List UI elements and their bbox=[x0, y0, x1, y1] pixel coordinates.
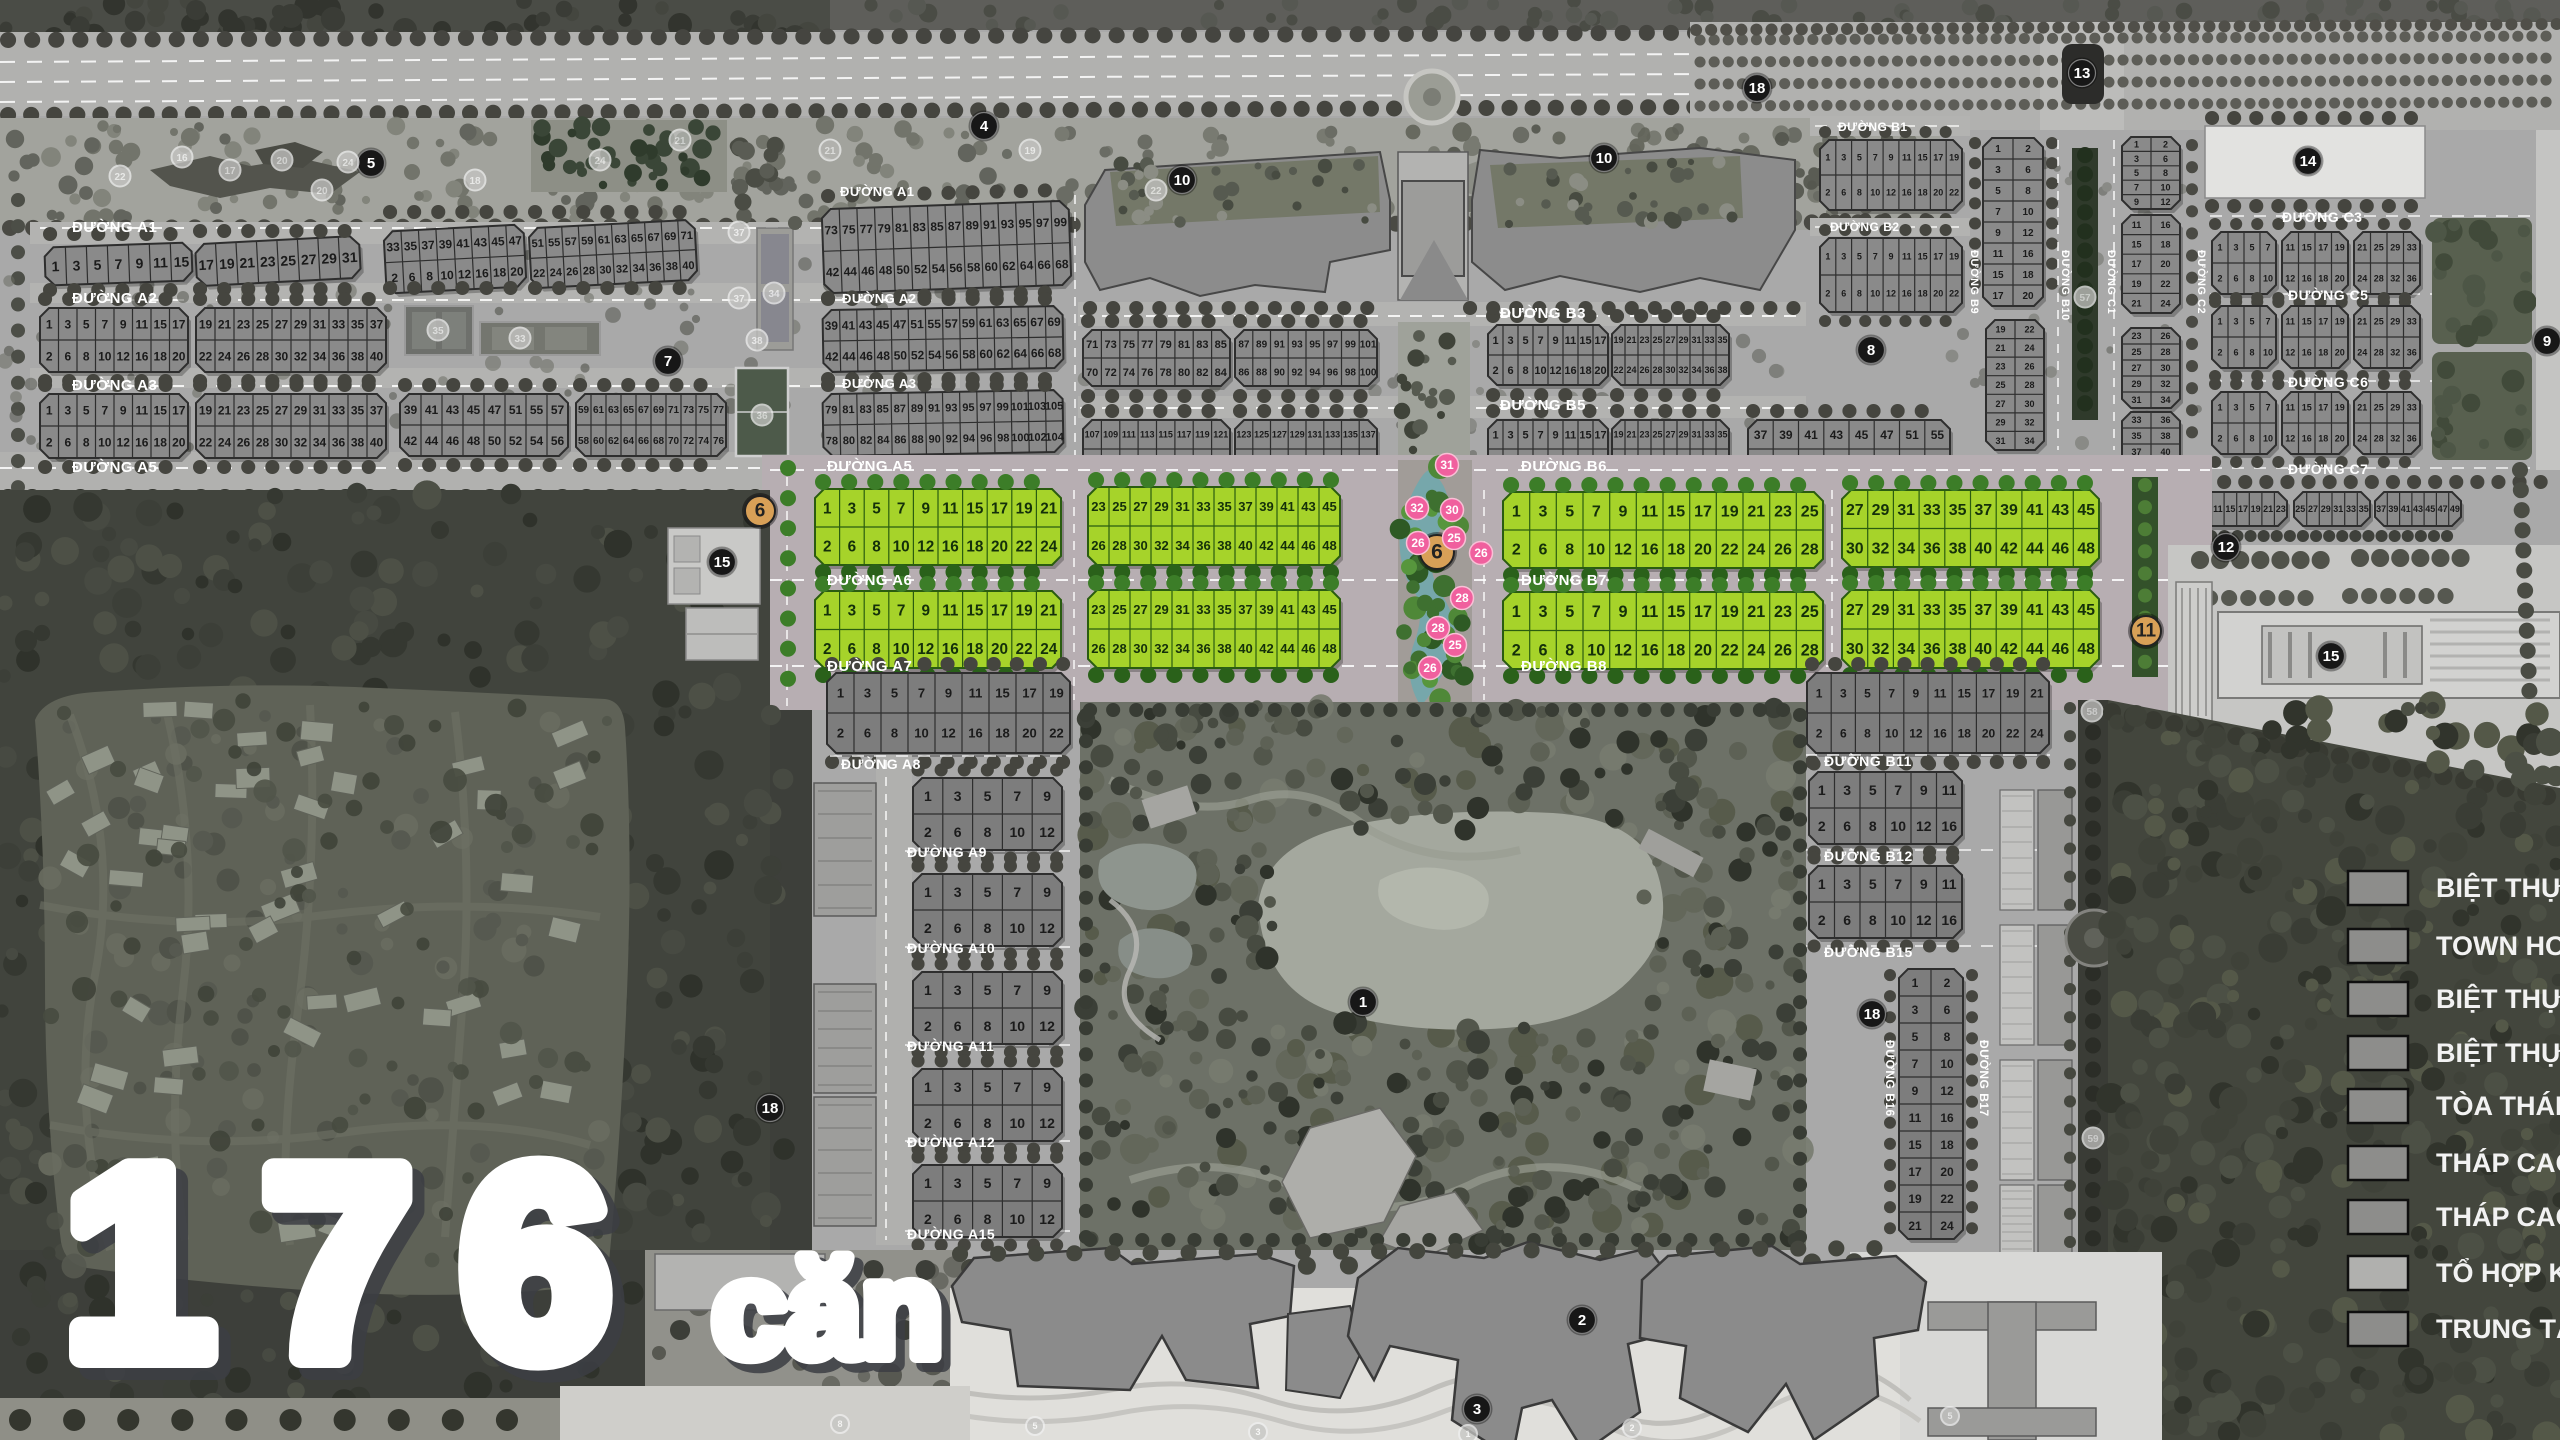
svg-text:12: 12 bbox=[1614, 542, 1632, 559]
svg-text:73: 73 bbox=[683, 405, 695, 416]
svg-text:6: 6 bbox=[1944, 1003, 1951, 1017]
svg-text:41: 41 bbox=[425, 403, 439, 417]
svg-text:15: 15 bbox=[2302, 317, 2312, 327]
svg-text:50: 50 bbox=[488, 434, 502, 448]
svg-text:35: 35 bbox=[1217, 499, 1231, 514]
svg-text:3: 3 bbox=[954, 1079, 962, 1095]
svg-text:28: 28 bbox=[1455, 591, 1469, 605]
svg-text:8: 8 bbox=[984, 920, 992, 936]
svg-text:16: 16 bbox=[2302, 434, 2312, 444]
svg-text:5: 5 bbox=[984, 884, 992, 900]
svg-text:36: 36 bbox=[2407, 434, 2417, 444]
svg-text:ĐƯỜNG C3: ĐƯỜNG C3 bbox=[2282, 208, 2362, 225]
svg-text:127: 127 bbox=[1272, 430, 1287, 440]
svg-text:25: 25 bbox=[1995, 380, 2005, 390]
svg-text:43: 43 bbox=[446, 403, 460, 417]
svg-text:TOWN HOUSE: TOWN HOUSE bbox=[2436, 931, 2560, 961]
svg-text:1: 1 bbox=[2217, 403, 2222, 413]
svg-text:7: 7 bbox=[1013, 788, 1021, 804]
svg-text:26: 26 bbox=[1091, 641, 1105, 656]
svg-text:ĐƯỜNG A12: ĐƯỜNG A12 bbox=[907, 1133, 995, 1150]
svg-text:28: 28 bbox=[1112, 538, 1126, 553]
svg-text:3: 3 bbox=[1507, 430, 1513, 442]
svg-text:17: 17 bbox=[1694, 504, 1712, 521]
svg-text:32: 32 bbox=[1154, 641, 1168, 656]
svg-text:83: 83 bbox=[859, 404, 871, 416]
svg-text:7: 7 bbox=[1013, 982, 1021, 998]
svg-text:ĐƯỜNG A8: ĐƯỜNG A8 bbox=[841, 755, 921, 772]
svg-text:29: 29 bbox=[1995, 417, 2005, 427]
svg-text:33: 33 bbox=[332, 317, 346, 331]
svg-text:18: 18 bbox=[1918, 188, 1928, 198]
svg-text:20: 20 bbox=[276, 156, 288, 167]
svg-text:62: 62 bbox=[996, 347, 1010, 361]
svg-text:12: 12 bbox=[117, 349, 131, 363]
svg-text:22: 22 bbox=[114, 172, 126, 183]
svg-text:15: 15 bbox=[2131, 240, 2141, 250]
svg-text:17: 17 bbox=[1694, 603, 1712, 621]
svg-text:ĐƯỜNG A2: ĐƯỜNG A2 bbox=[72, 289, 157, 307]
svg-text:10: 10 bbox=[1885, 726, 1899, 740]
svg-text:5: 5 bbox=[2249, 243, 2254, 253]
svg-text:16: 16 bbox=[1641, 642, 1659, 660]
svg-text:37: 37 bbox=[2376, 504, 2386, 514]
svg-text:63: 63 bbox=[608, 405, 620, 416]
svg-text:3: 3 bbox=[1473, 1401, 1481, 1418]
svg-text:17: 17 bbox=[224, 166, 236, 177]
svg-text:37: 37 bbox=[733, 294, 745, 305]
svg-text:21: 21 bbox=[2357, 317, 2367, 327]
svg-text:10: 10 bbox=[893, 641, 910, 658]
svg-text:48: 48 bbox=[2077, 641, 2095, 658]
svg-text:7: 7 bbox=[2265, 403, 2270, 413]
svg-text:6: 6 bbox=[2163, 154, 2168, 164]
svg-text:45: 45 bbox=[467, 403, 481, 417]
svg-text:89: 89 bbox=[1256, 340, 1268, 351]
svg-text:43: 43 bbox=[2413, 504, 2423, 514]
svg-text:1: 1 bbox=[1816, 686, 1823, 700]
svg-text:89: 89 bbox=[911, 403, 923, 415]
svg-text:92: 92 bbox=[946, 433, 958, 445]
svg-text:5: 5 bbox=[1565, 504, 1574, 521]
svg-text:5: 5 bbox=[984, 1175, 992, 1191]
svg-text:21: 21 bbox=[1040, 603, 1058, 620]
svg-text:92: 92 bbox=[1292, 368, 1304, 379]
svg-text:12: 12 bbox=[1886, 289, 1896, 299]
svg-text:98: 98 bbox=[1345, 368, 1357, 379]
svg-text:17: 17 bbox=[991, 501, 1008, 518]
svg-text:5: 5 bbox=[93, 257, 102, 273]
svg-text:16: 16 bbox=[968, 726, 982, 741]
svg-text:32: 32 bbox=[2390, 348, 2400, 358]
svg-text:12: 12 bbox=[2218, 539, 2235, 556]
svg-text:34: 34 bbox=[1897, 541, 1915, 558]
svg-text:15: 15 bbox=[1908, 1138, 1922, 1152]
svg-text:3: 3 bbox=[1843, 876, 1851, 892]
svg-text:40: 40 bbox=[370, 435, 384, 449]
svg-text:102: 102 bbox=[1028, 432, 1047, 444]
svg-text:8: 8 bbox=[1857, 188, 1862, 198]
svg-text:34: 34 bbox=[1897, 641, 1915, 658]
svg-text:29: 29 bbox=[2390, 243, 2400, 253]
svg-text:9: 9 bbox=[120, 403, 127, 417]
svg-text:42: 42 bbox=[2000, 541, 2018, 558]
svg-text:16: 16 bbox=[135, 349, 149, 363]
svg-text:32: 32 bbox=[1872, 541, 1890, 558]
svg-text:ĐƯỜNG A7: ĐƯỜNG A7 bbox=[827, 657, 912, 675]
svg-text:20: 20 bbox=[2022, 291, 2034, 302]
svg-text:48: 48 bbox=[467, 434, 481, 448]
svg-text:38: 38 bbox=[351, 435, 365, 449]
svg-text:67: 67 bbox=[647, 232, 660, 245]
svg-text:8: 8 bbox=[872, 641, 881, 658]
svg-text:10: 10 bbox=[1596, 150, 1613, 167]
svg-text:19: 19 bbox=[1024, 146, 1036, 157]
svg-text:11: 11 bbox=[1902, 153, 1912, 163]
svg-text:ĐƯỜNG B6: ĐƯỜNG B6 bbox=[1521, 457, 1607, 475]
svg-text:17: 17 bbox=[2318, 243, 2328, 253]
svg-text:99: 99 bbox=[1345, 340, 1357, 351]
svg-text:48: 48 bbox=[1322, 641, 1336, 656]
svg-text:21: 21 bbox=[1626, 430, 1636, 440]
svg-text:5: 5 bbox=[984, 788, 992, 804]
svg-text:16: 16 bbox=[135, 435, 149, 449]
svg-text:12: 12 bbox=[1916, 912, 1932, 928]
svg-text:ĐƯỜNG C2: ĐƯỜNG C2 bbox=[2195, 250, 2208, 314]
svg-text:43: 43 bbox=[1830, 428, 1844, 442]
svg-text:96: 96 bbox=[980, 433, 992, 445]
svg-text:49: 49 bbox=[2450, 504, 2460, 514]
svg-text:18: 18 bbox=[2022, 270, 2034, 281]
svg-text:16: 16 bbox=[1933, 726, 1947, 740]
svg-text:22: 22 bbox=[1721, 642, 1739, 660]
svg-text:36: 36 bbox=[1196, 641, 1210, 656]
svg-text:44: 44 bbox=[2026, 541, 2044, 558]
svg-text:3: 3 bbox=[848, 501, 857, 518]
svg-text:15: 15 bbox=[2302, 403, 2312, 413]
svg-text:34: 34 bbox=[632, 262, 646, 275]
svg-text:7: 7 bbox=[1592, 603, 1601, 621]
svg-text:61: 61 bbox=[593, 405, 605, 416]
svg-text:20: 20 bbox=[316, 186, 328, 197]
svg-text:95: 95 bbox=[1309, 340, 1321, 351]
svg-text:83: 83 bbox=[912, 220, 926, 234]
svg-text:12: 12 bbox=[2285, 434, 2295, 444]
svg-text:33: 33 bbox=[386, 240, 400, 255]
svg-text:2: 2 bbox=[924, 920, 932, 936]
svg-text:10: 10 bbox=[1870, 188, 1880, 198]
svg-text:74: 74 bbox=[1123, 367, 1136, 379]
svg-text:10: 10 bbox=[1587, 642, 1605, 660]
svg-text:36: 36 bbox=[756, 411, 768, 422]
svg-text:51: 51 bbox=[509, 403, 523, 417]
svg-text:72: 72 bbox=[683, 436, 695, 447]
svg-text:64: 64 bbox=[1014, 346, 1028, 360]
svg-text:36: 36 bbox=[332, 435, 346, 449]
svg-text:9: 9 bbox=[2543, 333, 2551, 350]
svg-text:35: 35 bbox=[432, 326, 444, 337]
svg-text:28: 28 bbox=[1801, 542, 1819, 559]
svg-text:2: 2 bbox=[924, 1115, 932, 1131]
svg-text:43: 43 bbox=[1301, 499, 1315, 514]
svg-text:94: 94 bbox=[1309, 368, 1321, 379]
svg-text:11: 11 bbox=[1641, 603, 1658, 621]
svg-text:9: 9 bbox=[1043, 982, 1051, 998]
svg-text:5: 5 bbox=[2134, 168, 2139, 178]
svg-text:20: 20 bbox=[1694, 542, 1712, 559]
svg-text:39: 39 bbox=[825, 319, 839, 333]
svg-text:68: 68 bbox=[1055, 257, 1069, 271]
svg-text:20: 20 bbox=[1933, 188, 1943, 198]
svg-text:5: 5 bbox=[1032, 1421, 1037, 1431]
svg-text:36: 36 bbox=[649, 261, 662, 274]
svg-text:12: 12 bbox=[917, 539, 934, 556]
svg-text:2: 2 bbox=[1825, 188, 1830, 198]
svg-text:2: 2 bbox=[1818, 912, 1826, 928]
svg-text:45: 45 bbox=[2425, 504, 2435, 514]
svg-text:38: 38 bbox=[1949, 541, 1967, 558]
svg-text:9: 9 bbox=[1043, 1175, 1051, 1191]
svg-text:7: 7 bbox=[1013, 1079, 1021, 1095]
svg-text:79: 79 bbox=[1160, 339, 1172, 351]
svg-text:22: 22 bbox=[1949, 188, 1959, 198]
svg-text:24: 24 bbox=[1747, 642, 1765, 660]
svg-text:6: 6 bbox=[2233, 434, 2238, 444]
svg-text:24: 24 bbox=[594, 156, 606, 167]
svg-text:25: 25 bbox=[2374, 243, 2384, 253]
svg-text:11: 11 bbox=[1909, 1111, 1922, 1125]
svg-text:29: 29 bbox=[1872, 602, 1890, 619]
svg-text:12: 12 bbox=[1039, 1018, 1055, 1034]
svg-text:17: 17 bbox=[172, 317, 186, 331]
svg-text:39: 39 bbox=[1259, 602, 1273, 617]
svg-text:81: 81 bbox=[895, 221, 909, 235]
svg-text:57: 57 bbox=[564, 236, 577, 249]
svg-text:7: 7 bbox=[1894, 876, 1902, 892]
svg-text:133: 133 bbox=[1325, 430, 1340, 440]
svg-text:35: 35 bbox=[2359, 504, 2369, 514]
svg-text:26: 26 bbox=[237, 435, 251, 449]
svg-text:6: 6 bbox=[954, 1115, 962, 1131]
svg-text:38: 38 bbox=[351, 349, 365, 363]
svg-text:27: 27 bbox=[275, 317, 289, 331]
svg-text:19: 19 bbox=[1613, 335, 1623, 345]
svg-text:12: 12 bbox=[2022, 228, 2034, 239]
svg-text:23: 23 bbox=[1774, 504, 1792, 521]
svg-text:87: 87 bbox=[894, 403, 906, 415]
svg-text:21: 21 bbox=[2030, 686, 2044, 700]
svg-text:10: 10 bbox=[1890, 912, 1906, 928]
svg-text:46: 46 bbox=[1301, 538, 1315, 553]
svg-text:3: 3 bbox=[64, 403, 71, 417]
svg-text:2: 2 bbox=[1492, 365, 1498, 377]
svg-text:30: 30 bbox=[1133, 538, 1147, 553]
svg-text:1: 1 bbox=[1465, 1429, 1470, 1439]
svg-text:31: 31 bbox=[313, 403, 327, 417]
svg-text:25: 25 bbox=[256, 403, 270, 417]
svg-text:BIỆT THỰ ĐƠN LẬP 1: BIỆT THỰ ĐƠN LẬP 1 bbox=[2436, 983, 2560, 1014]
svg-text:19: 19 bbox=[2006, 686, 2020, 700]
svg-text:11: 11 bbox=[2136, 621, 2157, 642]
svg-text:24: 24 bbox=[1747, 542, 1765, 559]
svg-text:17: 17 bbox=[1594, 430, 1606, 442]
svg-text:44: 44 bbox=[843, 264, 857, 278]
svg-text:11: 11 bbox=[135, 317, 148, 331]
svg-text:1: 1 bbox=[1359, 994, 1367, 1011]
svg-text:ĐƯỜNG C1: ĐƯỜNG C1 bbox=[2105, 250, 2118, 314]
svg-text:5: 5 bbox=[1522, 335, 1528, 347]
svg-text:ĐƯỜNG A10: ĐƯỜNG A10 bbox=[907, 939, 995, 956]
svg-text:56: 56 bbox=[945, 348, 959, 362]
svg-text:79: 79 bbox=[877, 221, 891, 235]
svg-text:40: 40 bbox=[370, 349, 384, 363]
svg-text:18: 18 bbox=[2318, 348, 2328, 358]
svg-text:ĐƯỜNG A5: ĐƯỜNG A5 bbox=[72, 458, 157, 476]
svg-text:42: 42 bbox=[826, 265, 840, 279]
svg-text:29: 29 bbox=[321, 250, 338, 267]
svg-text:7: 7 bbox=[897, 501, 906, 518]
svg-text:10: 10 bbox=[2263, 348, 2273, 358]
svg-text:1: 1 bbox=[924, 788, 932, 804]
svg-text:6: 6 bbox=[848, 539, 857, 556]
svg-text:1: 1 bbox=[823, 603, 832, 620]
svg-text:84: 84 bbox=[877, 434, 890, 446]
svg-text:12: 12 bbox=[1549, 365, 1561, 377]
svg-text:20: 20 bbox=[2335, 434, 2345, 444]
svg-text:38: 38 bbox=[1717, 365, 1727, 375]
svg-text:1: 1 bbox=[2134, 139, 2139, 149]
svg-text:22: 22 bbox=[533, 268, 546, 281]
svg-text:5: 5 bbox=[984, 1079, 992, 1095]
svg-text:6: 6 bbox=[2233, 348, 2238, 358]
svg-text:79: 79 bbox=[825, 404, 837, 416]
svg-text:7: 7 bbox=[2265, 243, 2270, 253]
svg-text:5: 5 bbox=[1857, 153, 1862, 163]
svg-text:44: 44 bbox=[1280, 641, 1295, 656]
svg-text:20: 20 bbox=[1022, 726, 1036, 741]
svg-text:21: 21 bbox=[2263, 504, 2273, 514]
svg-text:22: 22 bbox=[1949, 289, 1959, 299]
svg-text:8: 8 bbox=[2025, 186, 2031, 197]
svg-text:21: 21 bbox=[674, 136, 686, 147]
svg-text:22: 22 bbox=[1016, 539, 1033, 556]
svg-text:ĐƯỜNG B15: ĐƯỜNG B15 bbox=[1824, 943, 1913, 960]
svg-text:107: 107 bbox=[1085, 430, 1100, 440]
svg-text:16: 16 bbox=[2302, 348, 2312, 358]
svg-text:16: 16 bbox=[2302, 274, 2312, 284]
svg-text:18: 18 bbox=[995, 726, 1009, 741]
svg-text:17: 17 bbox=[1933, 153, 1943, 163]
svg-text:18: 18 bbox=[469, 176, 481, 187]
svg-text:95: 95 bbox=[1018, 216, 1032, 230]
svg-text:26: 26 bbox=[1423, 661, 1437, 675]
svg-text:35: 35 bbox=[1717, 335, 1727, 345]
svg-text:ĐƯỜNG B11: ĐƯỜNG B11 bbox=[1824, 752, 1912, 769]
svg-text:9: 9 bbox=[1888, 252, 1893, 262]
svg-text:3: 3 bbox=[1538, 603, 1547, 621]
svg-text:40: 40 bbox=[1238, 538, 1252, 553]
svg-text:1: 1 bbox=[46, 317, 53, 331]
svg-text:113: 113 bbox=[1140, 430, 1155, 440]
svg-text:35: 35 bbox=[351, 403, 365, 417]
svg-text:30: 30 bbox=[599, 264, 612, 277]
svg-text:23: 23 bbox=[237, 317, 251, 331]
svg-text:26: 26 bbox=[1474, 546, 1488, 560]
svg-text:31: 31 bbox=[1440, 458, 1454, 472]
svg-text:27: 27 bbox=[1133, 602, 1147, 617]
svg-text:45: 45 bbox=[1322, 499, 1336, 514]
svg-text:1: 1 bbox=[1995, 144, 2001, 155]
svg-text:19: 19 bbox=[1908, 1192, 1922, 1206]
svg-text:1: 1 bbox=[924, 1175, 932, 1191]
svg-text:85: 85 bbox=[930, 219, 944, 233]
svg-text:25: 25 bbox=[2295, 504, 2305, 514]
svg-text:80: 80 bbox=[1178, 367, 1190, 379]
svg-text:21: 21 bbox=[1747, 504, 1765, 521]
svg-text:29: 29 bbox=[294, 317, 308, 331]
svg-text:3: 3 bbox=[2233, 317, 2238, 327]
svg-text:6: 6 bbox=[755, 501, 766, 522]
svg-text:38: 38 bbox=[1949, 641, 1967, 658]
svg-text:28: 28 bbox=[2374, 348, 2384, 358]
svg-text:45: 45 bbox=[2077, 602, 2095, 619]
svg-text:46: 46 bbox=[1301, 641, 1315, 656]
svg-text:11: 11 bbox=[2285, 403, 2295, 413]
svg-text:60: 60 bbox=[984, 259, 998, 273]
svg-text:46: 46 bbox=[859, 349, 873, 363]
svg-text:7: 7 bbox=[1013, 1175, 1021, 1191]
svg-text:77: 77 bbox=[1141, 339, 1153, 351]
svg-text:9: 9 bbox=[1913, 686, 1920, 700]
svg-text:39: 39 bbox=[1259, 499, 1273, 514]
svg-text:3: 3 bbox=[1841, 153, 1846, 163]
svg-text:31: 31 bbox=[1175, 602, 1189, 617]
svg-text:2: 2 bbox=[46, 435, 53, 449]
svg-text:11: 11 bbox=[1942, 876, 1957, 892]
svg-text:37: 37 bbox=[1238, 602, 1252, 617]
svg-text:21: 21 bbox=[218, 403, 232, 417]
svg-text:28: 28 bbox=[2374, 274, 2384, 284]
svg-text:59: 59 bbox=[581, 235, 594, 248]
svg-text:18: 18 bbox=[1749, 80, 1766, 97]
svg-text:9: 9 bbox=[1043, 1079, 1051, 1095]
svg-text:7: 7 bbox=[664, 353, 672, 370]
svg-text:3: 3 bbox=[954, 1175, 962, 1191]
svg-text:54: 54 bbox=[928, 348, 942, 362]
svg-text:7: 7 bbox=[1013, 884, 1021, 900]
svg-text:44: 44 bbox=[1280, 538, 1295, 553]
svg-text:7: 7 bbox=[1873, 252, 1878, 262]
svg-text:2: 2 bbox=[1512, 542, 1521, 559]
svg-text:24: 24 bbox=[2357, 434, 2367, 444]
svg-text:18: 18 bbox=[1864, 1006, 1881, 1023]
svg-text:33: 33 bbox=[1704, 430, 1714, 440]
svg-text:15: 15 bbox=[2225, 504, 2235, 514]
svg-text:3: 3 bbox=[2134, 154, 2139, 164]
svg-text:10: 10 bbox=[2160, 183, 2170, 193]
svg-text:ĐƯỜNG A11: ĐƯỜNG A11 bbox=[907, 1037, 994, 1054]
svg-text:5: 5 bbox=[1995, 186, 2001, 197]
svg-text:1: 1 bbox=[1512, 603, 1521, 621]
svg-text:2: 2 bbox=[823, 641, 832, 658]
svg-text:15: 15 bbox=[1992, 270, 2004, 281]
svg-text:6: 6 bbox=[1840, 726, 1847, 740]
svg-text:14: 14 bbox=[2300, 153, 2317, 170]
svg-text:7: 7 bbox=[1592, 504, 1601, 521]
svg-text:37: 37 bbox=[421, 238, 435, 253]
svg-text:22: 22 bbox=[1049, 726, 1063, 741]
svg-text:88: 88 bbox=[1256, 368, 1268, 379]
